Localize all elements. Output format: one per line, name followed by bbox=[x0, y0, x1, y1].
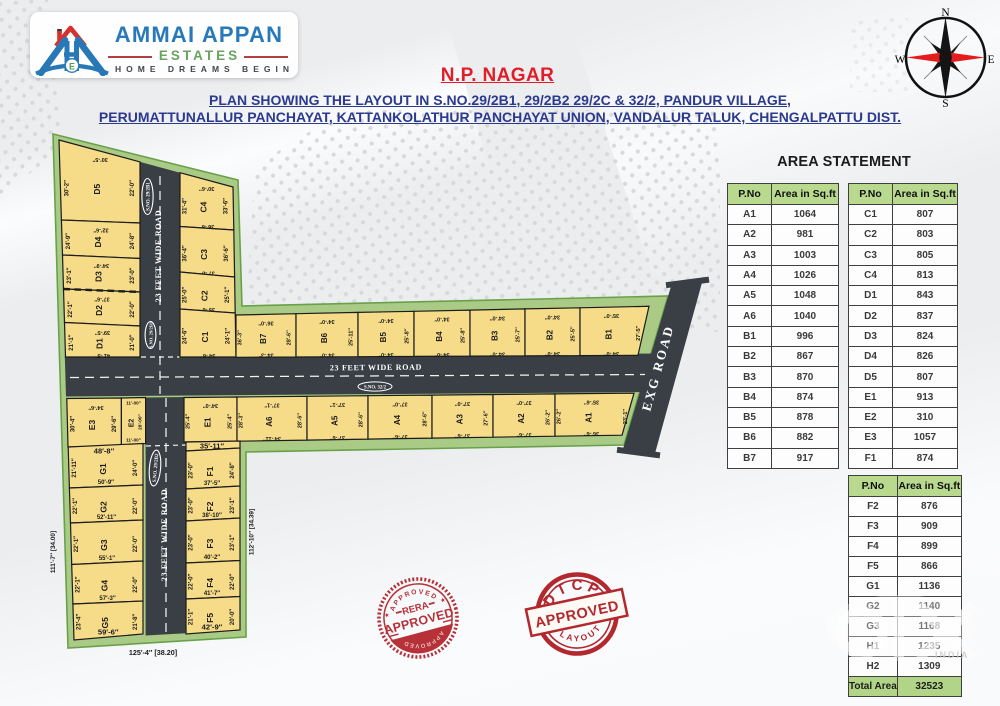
svg-text:INDIA: INDIA bbox=[935, 650, 970, 660]
